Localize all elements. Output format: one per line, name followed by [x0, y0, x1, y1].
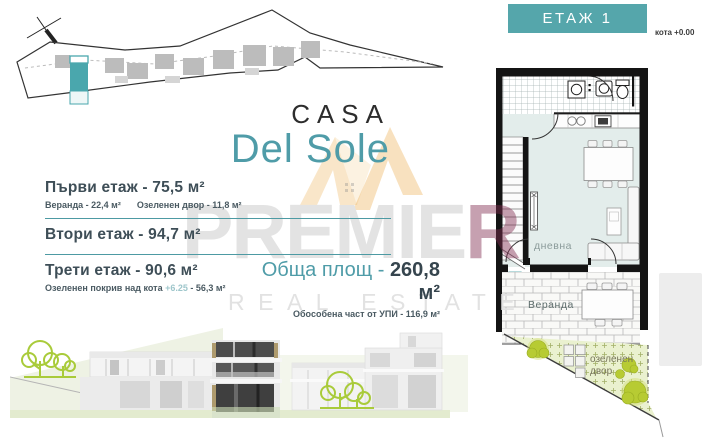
floor-1-detail-yard: Озеленен двор - 11,8 м² — [137, 200, 242, 210]
floor-title-badge: ЕТАЖ 1 — [508, 4, 647, 33]
north-arrow-icon — [27, 17, 61, 43]
elevation-note: кота +0.00 — [655, 28, 694, 37]
floor-1-details: Веранда - 22,4 м²Озеленен двор - 11,8 м² — [45, 200, 391, 210]
yard-label-line1: озеленен — [590, 354, 633, 365]
logo-line-delsole: Del Sole — [231, 129, 390, 169]
washer-icon — [568, 81, 585, 98]
building-elevation-drawing — [10, 315, 490, 427]
roof-note-prefix: Озеленен покрив над кота — [45, 283, 165, 293]
sink-icon — [568, 117, 576, 125]
watermark-red-part: R — [465, 189, 519, 275]
total-area-value: 260,8 м² — [390, 259, 440, 304]
floor-1-detail-veranda: Веранда - 22,4 м² — [45, 200, 121, 210]
dining-table — [584, 141, 633, 188]
brochure-page: ЕТАЖ 1 кота +0.00 — [0, 0, 707, 441]
divider — [45, 218, 391, 219]
toilet-icon — [616, 80, 629, 99]
yard-label-line2: двор — [590, 366, 613, 377]
kitchen-counter — [554, 112, 640, 128]
floor-plan-drawing: дневна Веранда — [492, 62, 707, 441]
total-area-block: Обща площ - 260,8 м² Обособена част от У… — [240, 259, 440, 319]
elevation-right-wing — [290, 333, 444, 410]
site-highlighted-unit — [70, 56, 88, 104]
radiator-icon — [531, 192, 538, 230]
divider — [45, 254, 391, 255]
total-area-label: Обща площ - — [262, 259, 390, 281]
floor-1-title: Първи етаж - 75,5 м² — [45, 179, 391, 197]
logo-line-casa: CASA — [231, 101, 390, 127]
living-room-label: дневна — [534, 240, 572, 252]
total-area-note: Обособена част от УПИ - 116,9 м² — [240, 309, 440, 319]
elevation-left-wing — [80, 352, 215, 410]
elevation-subject-building — [210, 340, 282, 418]
roof-note-elevation: +6.25 — [165, 283, 188, 293]
project-logo: CASA Del Sole — [231, 101, 390, 169]
floor-2-title: Втори етаж - 94,7 м² — [45, 226, 391, 244]
veranda-label: Веранда — [528, 299, 574, 311]
roof-note-suffix: - 56,3 м² — [188, 283, 226, 293]
